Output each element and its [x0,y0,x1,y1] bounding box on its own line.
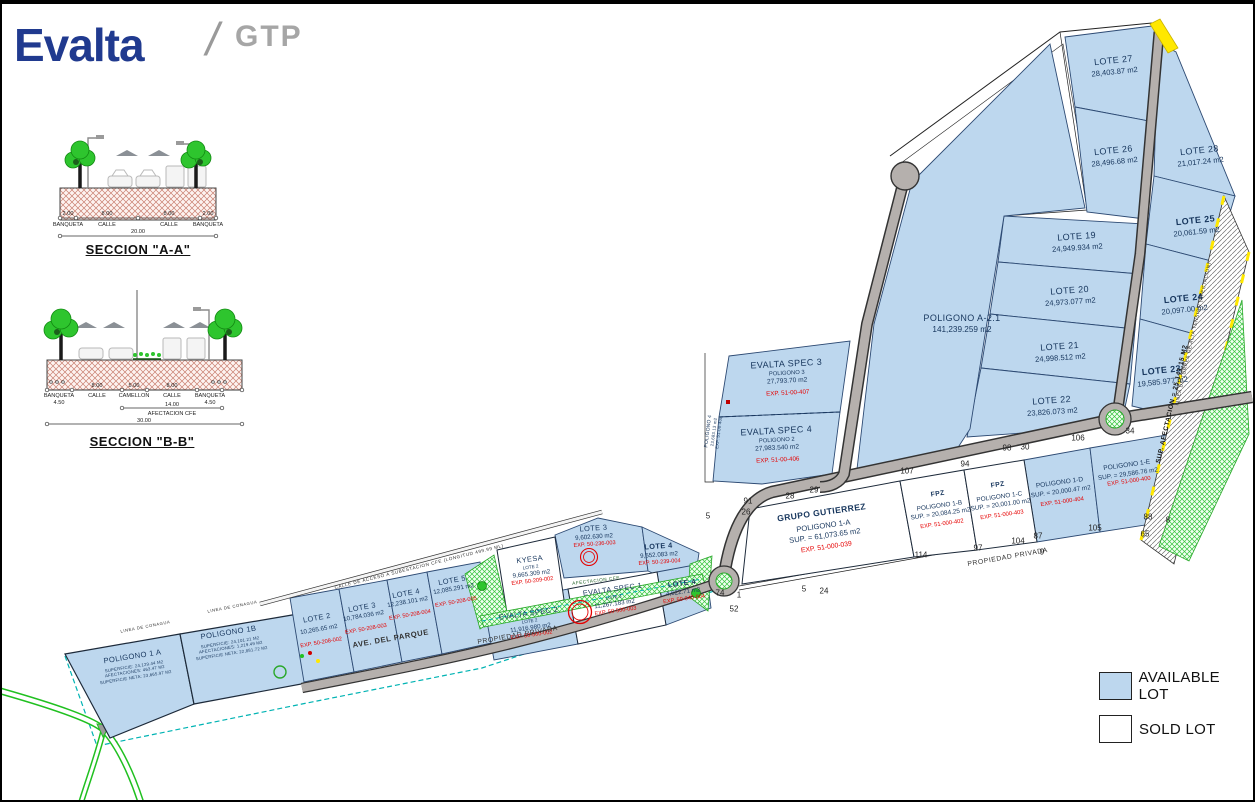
legend-available-swatch [1099,672,1132,700]
boundary-number: 26 [742,508,751,517]
boundary-number: 107 [900,467,913,476]
label-lote22: LOTE 22 23,826.073 m2 [1026,393,1078,418]
boundary-number: 28 [786,492,795,501]
boundary-number: 5 [802,585,806,594]
label-fpz-1b: FPZ POLIGONO 1-B SUP. = 20,084.25 m2 EXP… [907,486,972,533]
label-lote4-mid: LOTE 4 9,552.083 m2 EXP. 50-239-004 [637,540,681,568]
boundary-number: 104 [1011,537,1024,546]
legend-sold-row: SOLD LOT [1099,715,1253,743]
boundary-number: 34 [1126,427,1135,436]
label-evalta-spec3: EVALTA SPEC 3 POLIGONO 3 27,793.70 m2 EX… [750,357,824,400]
label-fpz-1c: FPZ POLIGONO 1-C SUP. = 20,001.00 m2 EXP… [967,477,1032,524]
boundary-number: 30 [1021,443,1030,452]
label-lote3-mid: LOTE 3 9,602.630 m2 EXP. 50-236-003 [572,522,616,550]
red-dot [726,400,730,404]
boundary-number: 5 [706,512,710,521]
boundary-number: 24 [820,587,829,596]
legend-available-row: AVAILABLE LOT [1099,669,1253,703]
label-evalta-spec4: EVALTA SPEC 4 POLIGONO 2 27,983.540 m2 E… [740,424,814,467]
legend-available-label: AVAILABLE LOT [1139,669,1253,703]
boundary-number: 52 [730,605,739,614]
boundary-number: 114 [915,551,928,560]
boundary-number: 1 [737,591,741,600]
label-lote19: LOTE 19 24,949.934 m2 [1051,229,1103,254]
boundary-number: 105 [1088,524,1101,533]
lot-lote28 [1154,42,1235,196]
legend: AVAILABLE LOT SOLD LOT [1099,669,1253,743]
label-poligono-a21: POLIGONO A-2.1 141,239.259 m2 [923,313,1000,335]
label-lote21: LOTE 21 24,998.512 m2 [1034,339,1086,364]
label-lote2: LOTE 2 10,265.65 m2 EXP. 50-208-002 [295,610,342,651]
boundary-number: 98 [1003,444,1012,453]
boundary-number: 29 [810,486,819,495]
boundary-number: 65 [1141,530,1150,539]
boundary-number: 9 [1040,548,1044,557]
boundary-number: 94 [961,460,970,469]
legend-sold-swatch [1099,715,1132,743]
boundary-number: 74 [716,589,725,598]
legend-sold-label: SOLD LOT [1139,721,1216,738]
site-plan-page: Evalta / GTP [0,0,1255,802]
boundary-number: 8 [1166,516,1170,525]
label-kyesa: KYESA LOTE 2 9,665.309 m2 EXP. 50-209-00… [508,552,554,588]
boundary-number: 87 [1034,532,1043,541]
label-lote20: LOTE 20 24,973.077 m2 [1044,283,1096,308]
boundary-number: 88 [1144,513,1153,522]
boundary-number: 91 [744,497,753,506]
boundary-number: 97 [974,544,983,553]
cul-de-sac [891,162,919,190]
boundary-number: 106 [1071,434,1084,443]
